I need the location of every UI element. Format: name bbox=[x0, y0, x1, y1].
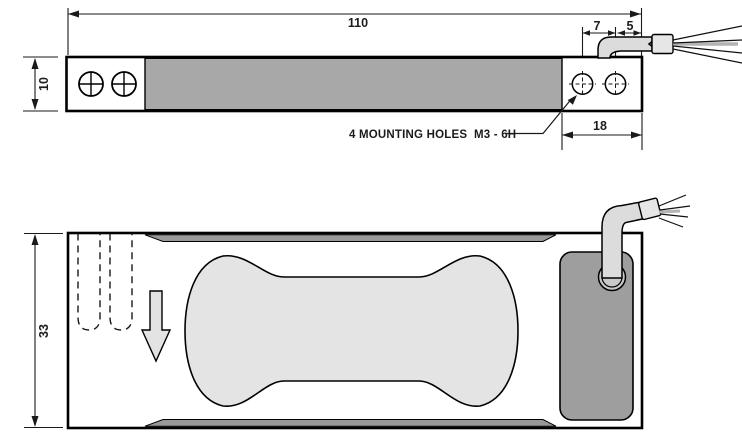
arrowhead-down bbox=[32, 99, 39, 110]
dim-110: 110 bbox=[68, 8, 642, 56]
cable-ferrule bbox=[638, 198, 661, 220]
arrowhead-left bbox=[618, 30, 626, 36]
dim-18-label: 18 bbox=[593, 119, 607, 133]
arrowhead-up bbox=[32, 58, 39, 69]
dim-5: 5 bbox=[618, 19, 642, 36]
arrowhead-left bbox=[68, 11, 79, 18]
edge-strip-top bbox=[145, 235, 556, 242]
arrowhead-right bbox=[630, 11, 641, 18]
cable-bottom bbox=[599, 195, 691, 291]
arrowhead-left bbox=[562, 132, 573, 139]
mounting-holes-note-label: 4 MOUNTING HOLES M3 - 6H bbox=[349, 129, 516, 141]
dim-10: 10 bbox=[23, 57, 58, 111]
bar-center-section bbox=[145, 58, 562, 109]
arrowhead-down bbox=[32, 416, 39, 427]
dim-5-label: 5 bbox=[627, 19, 634, 33]
arrowhead-right bbox=[631, 132, 642, 139]
cable-ferrule bbox=[652, 35, 673, 54]
arrowhead-right bbox=[634, 30, 642, 36]
bottom-view: 33 bbox=[24, 195, 690, 428]
load-cell-drawing: 110 7 5 bbox=[0, 0, 742, 442]
top-view: 110 7 5 bbox=[23, 8, 742, 150]
dim-18: 18 bbox=[562, 113, 642, 150]
arrowhead-right bbox=[608, 30, 616, 36]
screw-head-icon bbox=[112, 72, 136, 96]
screw-head-icon bbox=[79, 72, 103, 96]
cable-wires bbox=[673, 26, 742, 63]
drawing-canvas: 110 7 5 bbox=[0, 0, 742, 442]
dim-33-label: 33 bbox=[37, 324, 51, 338]
edge-strip-bottom bbox=[145, 420, 556, 427]
cable-elbow bbox=[598, 37, 652, 58]
dim-10-label: 10 bbox=[37, 77, 51, 91]
arrowhead-up bbox=[32, 234, 39, 245]
dim-33: 33 bbox=[24, 234, 63, 428]
cable-wires bbox=[659, 195, 690, 227]
dim-7-label: 7 bbox=[594, 19, 601, 33]
arrowhead-left bbox=[583, 30, 591, 36]
dim-110-label: 110 bbox=[348, 16, 368, 30]
